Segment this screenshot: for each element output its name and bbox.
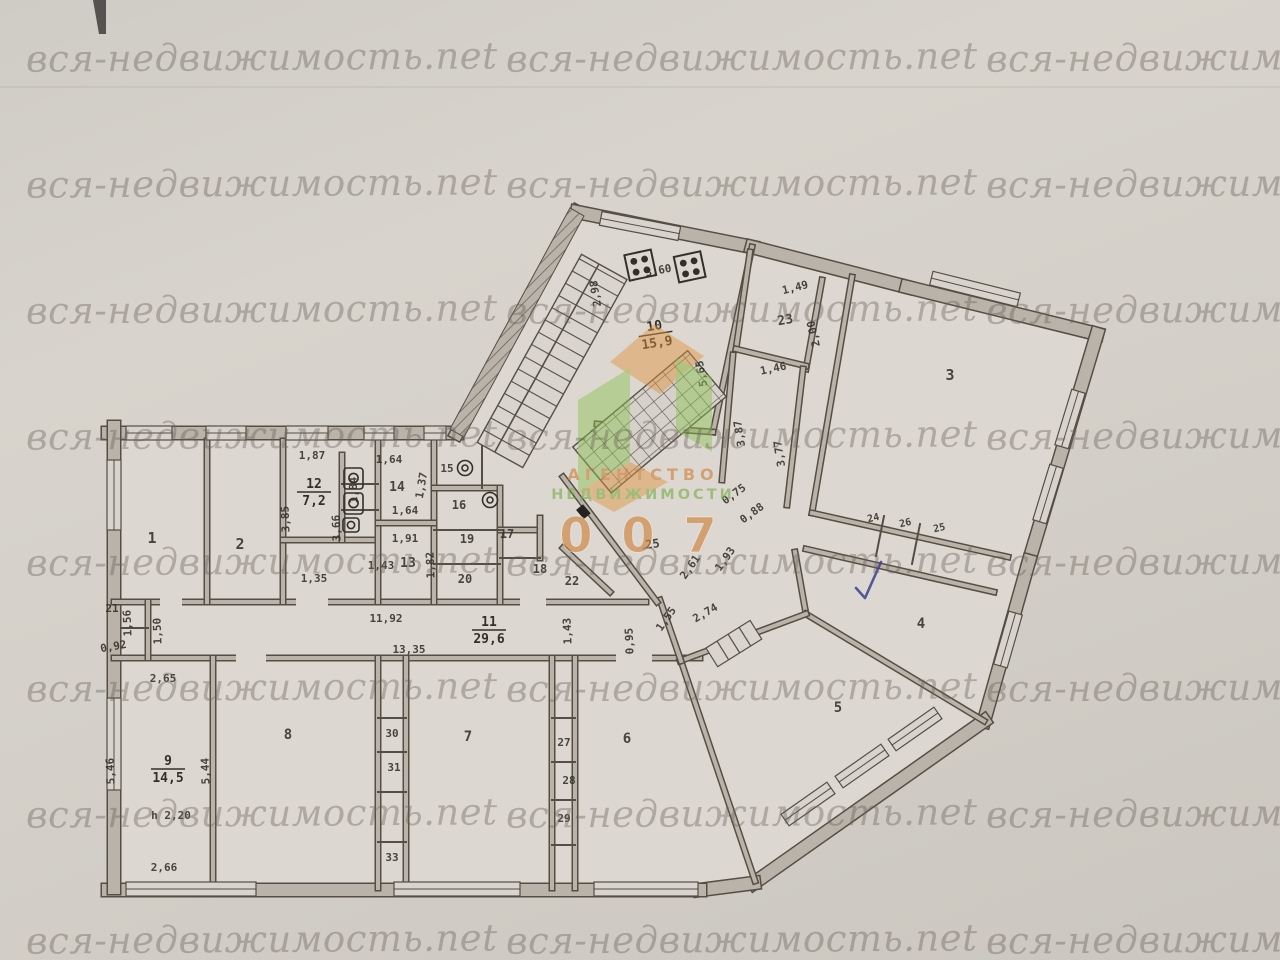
- room-label-14: 14: [389, 480, 405, 495]
- room-label-27: 27: [557, 736, 570, 749]
- room-label-13: 13: [400, 556, 416, 571]
- logo-number: 0 0 7: [559, 508, 723, 564]
- dimension-label: 0,95: [623, 628, 637, 655]
- dimension-label: 3,85: [279, 506, 293, 533]
- stove-icon: [674, 251, 706, 282]
- dimension-label: 1,50: [151, 618, 165, 645]
- room-label-21: 21: [105, 602, 119, 615]
- svg-text:29,6: 29,6: [473, 632, 504, 647]
- dimension-label: 1,82: [424, 552, 438, 579]
- scanned-floor-plan-page: 1234567813141516171819202122232426252527…: [0, 0, 1280, 960]
- room-label-1: 1: [147, 529, 156, 547]
- room-label-8: 8: [284, 727, 292, 743]
- svg-text:12: 12: [306, 477, 322, 492]
- room-label-17: 17: [500, 527, 514, 541]
- room-label-19: 19: [460, 532, 474, 546]
- dimension-label: 1,87: [299, 449, 326, 462]
- dimension-label: 5,46: [104, 757, 118, 784]
- dimension-label: 2,66: [151, 861, 178, 874]
- svg-text:14,5: 14,5: [152, 771, 183, 786]
- svg-text:7,2: 7,2: [302, 494, 325, 509]
- dimension-label: 5,44: [199, 757, 213, 784]
- room-label-7: 7: [464, 729, 472, 745]
- dimension-label: 2,65: [150, 672, 177, 685]
- room-label-22: 22: [565, 574, 579, 588]
- logo-agency-word: АГЕНТСТВО: [567, 465, 718, 484]
- dimension-label: 1,43: [368, 559, 395, 572]
- room-label-28: 28: [562, 774, 575, 787]
- dimension-label: 3,66: [330, 514, 344, 541]
- svg-text:11: 11: [481, 615, 497, 630]
- room-label-33: 33: [385, 851, 398, 864]
- room-label-3: 3: [945, 366, 954, 384]
- room-label-20: 20: [458, 572, 472, 586]
- room-label-6: 6: [623, 731, 631, 747]
- room-label-31: 31: [387, 761, 401, 774]
- dimension-label: 13,35: [392, 643, 425, 656]
- floor-plan-drawing: 1234567813141516171819202122232426252527…: [0, 0, 1280, 960]
- dimension-label: h 2,20: [151, 809, 191, 822]
- svg-text:9: 9: [164, 754, 172, 769]
- room-label-29: 29: [557, 812, 570, 825]
- room-label-15: 15: [440, 462, 453, 475]
- dimension-label: 1,35: [301, 572, 328, 585]
- logo-agency-word2: НЕДВИЖИМОСТИ: [551, 487, 734, 503]
- dimension-label: 1,43: [561, 618, 575, 645]
- dimension-label: 11,92: [369, 612, 402, 625]
- room-label-30: 30: [385, 727, 398, 740]
- room-label-4: 4: [917, 616, 925, 632]
- dimension-label: 1,84: [347, 476, 361, 503]
- scan-edge-artifact: [93, 0, 106, 34]
- dimension-label: 1,91: [392, 532, 419, 545]
- room-label-5: 5: [834, 700, 842, 716]
- room-label-23: 23: [776, 312, 794, 329]
- dimension-label: 1,64: [376, 453, 403, 466]
- room-label-2: 2: [235, 535, 244, 553]
- room-label-16: 16: [452, 498, 466, 512]
- dimension-label: 1,64: [392, 504, 419, 517]
- room-label-18: 18: [533, 562, 547, 576]
- dimension-label: 1,56: [121, 609, 135, 636]
